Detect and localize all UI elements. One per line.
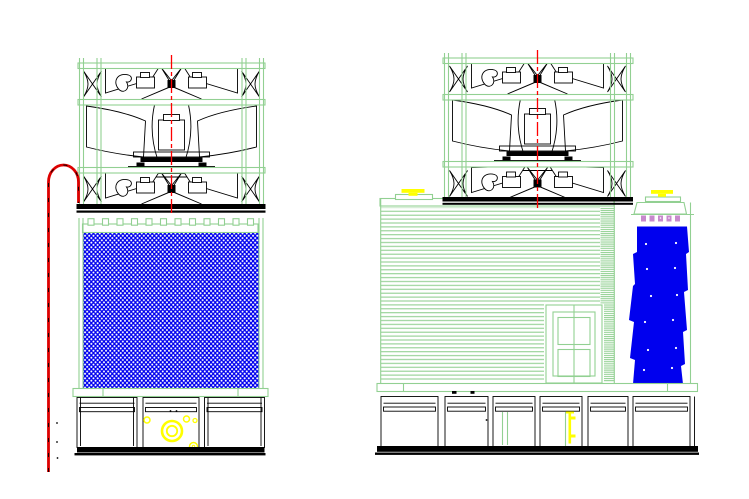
basin-panel-left (77, 398, 137, 448)
riser-gooseneck-pipe (49, 165, 79, 472)
cooling-tower-drawing (0, 0, 749, 499)
basin-bottom-line (375, 453, 699, 455)
basin-bottom-band (377, 446, 698, 452)
basin-panel (588, 397, 628, 447)
basin-panel-middle (143, 398, 199, 451)
access-door (544, 304, 604, 389)
vent-cap-left (396, 189, 433, 200)
basin-panel (493, 397, 535, 447)
basin-panel-right (205, 398, 265, 448)
vent-cap-right (646, 190, 681, 202)
basin-bottom-line (75, 453, 266, 455)
basin-panel (633, 397, 695, 447)
basin-bottom-band (77, 447, 265, 453)
front-elevation-view (49, 55, 269, 472)
collection-basin (75, 398, 266, 456)
drawing-sheet (0, 0, 749, 499)
basin-ledge-side (377, 384, 698, 392)
cascade-panel (629, 227, 689, 385)
fill-media-hatch (84, 233, 259, 389)
collection-basin-side (375, 391, 699, 455)
side-elevation-view (375, 50, 699, 455)
basin-panel (445, 391, 488, 447)
spray-nozzles (641, 216, 680, 222)
basin-panel (381, 397, 438, 447)
distribution-deck-slats (83, 219, 259, 233)
basin-ledge (73, 389, 268, 397)
